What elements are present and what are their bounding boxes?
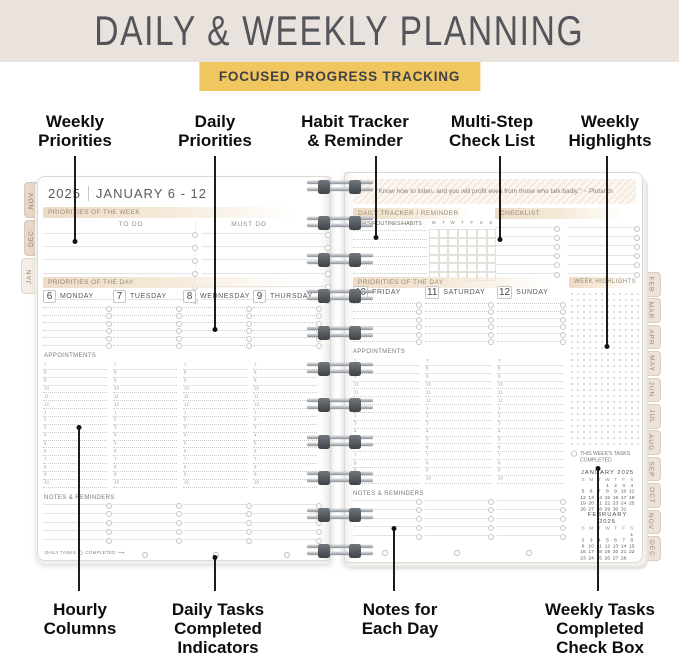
tracker-checkbox [429, 238, 439, 247]
ruled-line [183, 345, 247, 346]
month-tabs-left: NOVDECJAN [21, 182, 38, 302]
hour-line [425, 373, 491, 374]
hour-number: 10 [184, 386, 189, 390]
callout-line [214, 156, 216, 330]
hour-number: 12 [44, 402, 49, 406]
ruled-line [567, 273, 635, 274]
hour-number: 5 [114, 441, 116, 445]
hour-number: 9 [254, 378, 256, 382]
spiral-coil [305, 290, 375, 303]
hour-number: 7 [498, 453, 500, 457]
hour-number: 11 [44, 394, 49, 398]
day-number: 12 [497, 286, 512, 299]
hour-line [497, 443, 563, 444]
hour-number: 10 [114, 386, 119, 390]
hour-line [43, 463, 107, 464]
hour-line [113, 408, 177, 409]
hour-number: 2 [44, 417, 46, 421]
calendar-title: JANUARY 2025 [579, 469, 636, 476]
hour-number: 1 [426, 406, 428, 410]
tracker-checkbox [467, 229, 477, 238]
ruled-line [43, 330, 107, 331]
hour-number: 10 [184, 480, 189, 484]
hour-number: 7 [184, 457, 186, 461]
hour-line [183, 400, 247, 401]
tracker-weekday: S [486, 220, 496, 225]
tracker-checkbox [429, 263, 439, 272]
ruled-line [497, 518, 561, 519]
hourly-grid: 7891011121234567891078910111212345678910… [43, 361, 327, 488]
ruled-line [43, 530, 107, 531]
tab-dec: DEC [642, 536, 661, 561]
ruled-line [113, 337, 177, 338]
hour-number: 9 [498, 468, 500, 472]
daily-completed-circle [382, 550, 388, 556]
spiral-coil [305, 472, 375, 485]
hour-number: 4 [114, 433, 116, 437]
hour-line [497, 396, 563, 397]
tracker-checkbox [458, 229, 468, 238]
ruled-line [567, 227, 635, 228]
tracker-checkbox [439, 238, 449, 247]
ruled-line [113, 522, 177, 523]
tracker-checkbox [458, 246, 468, 255]
tab-may: MAY [642, 351, 661, 376]
day-header: 9THURSDAY [253, 290, 313, 303]
tracker-checkbox [477, 263, 487, 272]
hour-line [43, 487, 107, 488]
week-highlights-band: WEEK HIGHLIGHTS [569, 277, 637, 288]
quote-band: "Know how to listen, and you will profit… [353, 179, 636, 204]
hour-line [425, 475, 491, 476]
month-tabs-right: FEBMARAPRMAYJUNJULAUGSEPOCTNOVDEC [642, 272, 662, 564]
hour-number: 9 [426, 468, 428, 472]
hour-number: 9 [114, 472, 116, 476]
hour-line [183, 471, 247, 472]
hour-number: 10 [44, 386, 49, 390]
callout-daily-tasks-completed: Daily Tasks Completed Indicators [148, 600, 288, 655]
notes-lines [353, 500, 573, 545]
calendar-title: FEBRUARY 2025 [579, 511, 636, 525]
hour-number: 7 [426, 359, 428, 363]
ruled-line [43, 504, 107, 505]
ruled-line [113, 504, 177, 505]
day-header: 6MONDAY [43, 290, 94, 303]
spiral-binding [305, 181, 375, 561]
hour-number: 1 [498, 406, 500, 410]
day-header: 11SATURDAY [425, 286, 485, 299]
ruled-line [183, 522, 247, 523]
callout-line [606, 156, 608, 347]
hour-number: 1 [254, 410, 256, 414]
tracker-checkbox [467, 246, 477, 255]
spiral-coil [305, 181, 375, 194]
hour-line [183, 447, 247, 448]
callout-multi-step-check-list: Multi-Step Check List [412, 112, 572, 150]
hour-number: 8 [254, 370, 256, 374]
weekly-tasks-completed-checkbox: THIS WEEK'S TASKS COMPLETED [571, 450, 642, 463]
hour-line [113, 392, 177, 393]
hour-number: 9 [184, 472, 186, 476]
hour-number: 3 [254, 425, 256, 429]
spiral-coil [305, 363, 375, 376]
callout-line [393, 528, 395, 591]
spiral-coil [305, 254, 375, 267]
hour-number: 10 [498, 476, 503, 480]
hour-line [43, 432, 107, 433]
hour-number: 10 [254, 386, 259, 390]
ruled-line [183, 530, 247, 531]
hour-line [183, 392, 247, 393]
hour-number: 9 [498, 374, 500, 378]
spiral-coil [305, 545, 375, 558]
hour-number: 8 [44, 370, 46, 374]
callout-line [78, 427, 80, 591]
hour-line [497, 459, 563, 460]
ruled-line [495, 255, 555, 256]
ruled-line [43, 345, 107, 346]
checklist-lines [495, 227, 637, 283]
hour-line [113, 471, 177, 472]
hour-number: 9 [426, 374, 428, 378]
tab-oct: OCT [642, 483, 661, 508]
callout-daily-priorities: Daily Priorities [155, 112, 275, 150]
ruled-line [495, 236, 555, 237]
hour-number: 11 [498, 390, 503, 394]
priorities-day-lines [353, 303, 573, 349]
hour-number: 8 [114, 370, 116, 374]
daily-completed-circle [142, 552, 148, 558]
day-number: 11 [425, 286, 439, 299]
day-header: 8WEDNESDAY [183, 290, 250, 303]
day-name: TUESDAY [130, 293, 167, 300]
ruled-line [495, 264, 555, 265]
hour-number: 12 [184, 402, 189, 406]
hour-line [497, 483, 563, 484]
hour-line [43, 400, 107, 401]
ruled-line [183, 513, 247, 514]
hour-number: 5 [44, 441, 46, 445]
hour-number: 8 [184, 370, 186, 374]
tab-jul: JUL [642, 404, 661, 429]
hour-line [497, 451, 563, 452]
hour-line [113, 447, 177, 448]
callout-line [375, 156, 377, 238]
ruled-line [425, 326, 489, 327]
tracker-checkbox [458, 263, 468, 272]
ruled-line [43, 233, 193, 234]
day-name: FRIDAY [372, 289, 401, 296]
day-number: 8 [183, 290, 196, 303]
hour-number: 7 [254, 363, 256, 367]
hour-line [113, 432, 177, 433]
banner-title: DAILY & WEEKLY PLANNING [95, 7, 585, 55]
hour-number: 9 [114, 378, 116, 382]
hour-number: 8 [254, 465, 256, 469]
tab-sep: SEP [642, 457, 661, 482]
ruled-line [425, 500, 489, 501]
hour-line [425, 428, 491, 429]
hour-number: 12 [426, 398, 431, 402]
hour-line [113, 455, 177, 456]
hour-number: 7 [184, 363, 186, 367]
tracker-weekday: F [467, 220, 477, 225]
arrow-icon: ⟶ [118, 550, 125, 555]
hour-number: 7 [44, 457, 46, 461]
hour-number: 5 [498, 437, 500, 441]
ruled-line [43, 307, 107, 308]
hour-line [497, 381, 563, 382]
ruled-line [497, 333, 561, 334]
hour-line [497, 428, 563, 429]
ruled-line [425, 303, 489, 304]
callout-weekly-highlights: Weekly Highlights [550, 112, 670, 150]
tab-jun: JUN [642, 378, 661, 403]
ruled-line [497, 509, 561, 510]
hour-number: 7 [114, 457, 116, 461]
day-headers: 10FRIDAY11SATURDAY12SUNDAY [353, 286, 573, 302]
hour-number: 11 [254, 394, 259, 398]
hour-line [425, 451, 491, 452]
tracker-weekday: W [448, 220, 458, 225]
day-name: SATURDAY [443, 289, 485, 296]
ruled-line [567, 255, 635, 256]
ruled-line [425, 341, 489, 342]
hour-number: 4 [184, 433, 186, 437]
hour-line [425, 459, 491, 460]
hour-number: 2 [498, 413, 500, 417]
day-header: 12SUNDAY [497, 286, 548, 299]
ruled-line [43, 322, 107, 323]
hour-number: 4 [426, 429, 428, 433]
callout-line [214, 557, 216, 591]
hour-number: 2 [426, 413, 428, 417]
hour-number: 1 [184, 410, 186, 414]
ruled-line [425, 333, 489, 334]
daily-completed-circle [284, 552, 290, 558]
ruled-line [567, 236, 635, 237]
hour-line [183, 432, 247, 433]
callout-weekly-tasks-checkbox: Weekly Tasks Completed Check Box [520, 600, 679, 655]
hour-line [425, 381, 491, 382]
hour-number: 6 [44, 449, 46, 453]
habit-tracker-grid [429, 229, 496, 281]
week-header: 2025 JANUARY 6 - 12 [48, 183, 207, 203]
hour-line [113, 479, 177, 480]
hour-line [425, 365, 491, 366]
callout-line [499, 156, 501, 240]
hour-line [43, 471, 107, 472]
hour-number: 10 [44, 480, 49, 484]
header-divider [88, 186, 89, 201]
ruled-line [43, 337, 107, 338]
hour-line [183, 377, 247, 378]
ruled-line [425, 535, 489, 536]
hour-number: 10 [254, 480, 259, 484]
day-name: MONDAY [60, 293, 94, 300]
callout-weekly-priorities: Weekly Priorities [15, 112, 135, 150]
hour-line [113, 440, 177, 441]
hour-line [43, 424, 107, 425]
tab-jan: JAN [21, 258, 38, 294]
tracker-checkbox [458, 255, 468, 264]
planner-left-page: 2025 JANUARY 6 - 12 PRIORITIES OF THE WE… [37, 176, 331, 561]
tab-dec: DEC [24, 220, 38, 256]
planner-product-image: DAILY & WEEKLY PLANNING FOCUSED PROGRESS… [0, 0, 679, 655]
ruled-line [113, 315, 177, 316]
hour-number: 6 [254, 449, 256, 453]
day-number: 6 [43, 290, 56, 303]
ruled-line [425, 509, 489, 510]
hour-number: 8 [44, 465, 46, 469]
hour-number: 10 [114, 480, 119, 484]
ruled-line [497, 311, 561, 312]
hour-line [113, 487, 177, 488]
ruled-line [43, 539, 107, 540]
ruled-line [425, 518, 489, 519]
mini-calendar-february: FEBRUARY 2025SMTWTFS12345678910111213141… [579, 511, 636, 561]
banner: DAILY & WEEKLY PLANNING [0, 0, 679, 62]
tracker-checkbox [448, 238, 458, 247]
hour-number: 11 [184, 394, 189, 398]
hour-number: 5 [184, 441, 186, 445]
tab-apr: APR [642, 325, 661, 350]
hour-number: 7 [426, 453, 428, 457]
hour-line [425, 412, 491, 413]
callout-line [74, 156, 76, 242]
spiral-coil [305, 399, 375, 412]
hour-number: 3 [44, 425, 46, 429]
hour-number: 3 [184, 425, 186, 429]
banner-badge: FOCUSED PROGRESS TRACKING [199, 62, 480, 91]
hour-line [43, 369, 107, 370]
mini-calendar-january: JANUARY 2025SMTWTFS123456789101112131415… [579, 469, 636, 512]
hour-line [497, 365, 563, 366]
spiral-coil [305, 509, 375, 522]
hour-line [183, 463, 247, 464]
tracker-weekday: T [439, 220, 449, 225]
hour-number: 6 [184, 449, 186, 453]
ruled-line [43, 259, 193, 260]
tab-mar: MAR [642, 298, 661, 323]
hour-line [113, 377, 177, 378]
priorities-of-day-band: PRIORITIES OF THE DAY [43, 277, 319, 288]
day-number: 9 [253, 290, 266, 303]
todo-column-label: TO DO [101, 221, 161, 228]
weekly-tasks-text: THIS WEEK'S TASKS COMPLETED [580, 450, 642, 463]
hour-line [183, 385, 247, 386]
ruled-line [425, 526, 489, 527]
tracker-checkbox [439, 263, 449, 272]
ruled-line [567, 245, 635, 246]
day-headers: 6MONDAY7TUESDAY8WEDNESDAY9THURSDAY [43, 290, 327, 306]
hour-number: 8 [114, 465, 116, 469]
hour-line [183, 408, 247, 409]
hour-line [43, 440, 107, 441]
hour-line [183, 416, 247, 417]
ruled-line [497, 526, 561, 527]
tracker-weekday-headers: MTWTFSS [429, 220, 499, 225]
tracker-checkbox [477, 229, 487, 238]
mustdo-column-label: MUST DO [219, 221, 279, 228]
tracker-checkbox [477, 246, 487, 255]
ruled-line [183, 539, 247, 540]
ruled-line [497, 535, 561, 536]
spiral-coil [305, 217, 375, 230]
ruled-line [43, 273, 193, 274]
hour-line [43, 416, 107, 417]
hour-number: 5 [254, 441, 256, 445]
ruled-line [567, 264, 635, 265]
hour-number: 1 [114, 410, 116, 414]
hour-number: 7 [498, 359, 500, 363]
hour-number: 3 [498, 421, 500, 425]
checklist-band: CHECKLIST [495, 208, 637, 219]
hour-number: 6 [426, 445, 428, 449]
ruled-line [113, 307, 177, 308]
ruled-line [113, 539, 177, 540]
ruled-line [113, 513, 177, 514]
hour-number: 6 [498, 445, 500, 449]
hour-number: 7 [44, 363, 46, 367]
daily-completed-circle [526, 550, 532, 556]
tracker-checkbox [429, 246, 439, 255]
hourly-grid: 7891011121234567891078910111212345678910… [353, 357, 573, 484]
tab-aug: AUG [642, 430, 661, 455]
hour-line [425, 483, 491, 484]
hour-line [497, 420, 563, 421]
ruled-line [113, 322, 177, 323]
hour-line [113, 385, 177, 386]
week-highlights-dot-grid [569, 291, 639, 449]
tracker-checkbox [458, 238, 468, 247]
ruled-line [113, 330, 177, 331]
tracker-checkbox [477, 238, 487, 247]
ruled-line [495, 227, 555, 228]
hour-number: 12 [254, 402, 259, 406]
day-name: WEDNESDAY [200, 293, 250, 300]
week-range-label: JANUARY 6 - 12 [96, 186, 207, 201]
hour-line [183, 440, 247, 441]
hour-number: 9 [184, 378, 186, 382]
ruled-line [497, 500, 561, 501]
ruled-line [425, 311, 489, 312]
hour-number: 4 [44, 433, 46, 437]
tracker-checkbox [448, 246, 458, 255]
daily-completed-circle [454, 550, 460, 556]
tab-feb: FEB [642, 272, 661, 297]
spiral-coil [305, 436, 375, 449]
tracker-checkbox [467, 255, 477, 264]
hour-line [497, 388, 563, 389]
appointments-label: APPOINTMENTS [44, 353, 96, 359]
hour-line [113, 369, 177, 370]
ruled-line [43, 522, 107, 523]
hour-line [183, 369, 247, 370]
callout-hourly-columns: Hourly Columns [20, 600, 140, 638]
ruled-line [43, 513, 107, 514]
hour-line [497, 475, 563, 476]
tab-nov: NOV [24, 182, 38, 218]
ruled-line [113, 345, 177, 346]
hour-line [497, 412, 563, 413]
hour-number: 4 [498, 429, 500, 433]
tracker-checkbox [448, 263, 458, 272]
day-header: 7TUESDAY [113, 290, 167, 303]
hour-line [113, 400, 177, 401]
day-name: SUNDAY [516, 289, 548, 296]
hour-number: 8 [498, 366, 500, 370]
